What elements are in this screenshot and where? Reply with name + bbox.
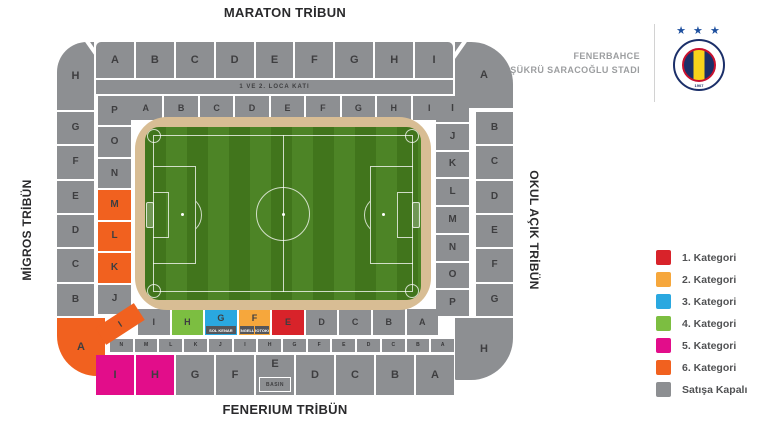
okul-acik-tribune-title: OKUL AÇIK TRİBÜN — [525, 165, 541, 295]
legend-label: Satışa Kapalı — [682, 384, 747, 396]
section-label: G — [217, 314, 224, 323]
section-label: O — [111, 137, 119, 147]
section-label: O — [449, 270, 457, 280]
section-label: G — [292, 343, 296, 348]
crest-stars-icon: ★ ★ ★ — [670, 26, 728, 37]
section-label: D — [72, 226, 79, 236]
goal-right — [412, 202, 420, 228]
section-label: D — [491, 192, 498, 202]
section-a: A — [96, 42, 134, 78]
section-label: P — [111, 106, 118, 116]
fenerium-middle-tier-row: NMLKJIHGFEDCBA — [110, 339, 454, 352]
section-label: N — [120, 343, 124, 348]
micro-label-row: SOL KENAR — [206, 326, 236, 334]
section-label: F — [491, 260, 497, 270]
section-label: G — [72, 123, 80, 133]
okul-inner-column: IJKLMNOP — [436, 96, 469, 316]
fenerium-tribune-title: FENERIUM TRİBÜN — [135, 402, 435, 417]
section-a: A — [416, 355, 454, 395]
section-label: D — [367, 343, 371, 348]
section-label: L — [111, 231, 117, 241]
header-divider — [654, 24, 655, 102]
section-k[interactable]: K — [98, 253, 131, 282]
section-label: C — [191, 55, 199, 66]
section-i: I — [436, 96, 469, 122]
press-box: BASIN — [259, 377, 291, 392]
section-i: I — [138, 309, 170, 335]
section-label: G — [355, 104, 362, 113]
section-label: J — [112, 294, 118, 304]
legend-swatch-cat6 — [656, 360, 671, 375]
legend-label: 4. Kategori — [682, 318, 736, 330]
corner-arc — [147, 129, 161, 143]
legend-label: 1. Kategori — [682, 252, 736, 264]
section-label: D — [311, 370, 319, 381]
okul-outer-column: BCDEFG — [476, 112, 513, 316]
center-spot — [282, 213, 285, 216]
section-label: B — [178, 104, 185, 113]
section-b: B — [57, 284, 94, 316]
legend-swatch-cat2 — [656, 272, 671, 287]
migros-outer-column: GFEDCB — [57, 112, 94, 316]
football-pitch — [145, 127, 421, 300]
section-label: B — [72, 295, 79, 305]
micro-label: SOL KENAR — [206, 326, 236, 334]
stadium-seat-map-page: MARATON TRİBUN FENERIUM TRİBÜN MİGROS TR… — [0, 0, 770, 439]
section-label: G — [491, 295, 499, 305]
section-label: A — [142, 104, 149, 113]
section-i: I — [415, 42, 453, 78]
section-p: P — [98, 96, 131, 125]
section-l[interactable]: L — [98, 222, 131, 251]
section-k: K — [184, 339, 207, 352]
section-n: N — [110, 339, 133, 352]
section-label: I — [113, 370, 116, 381]
stadium-header-text: FENERBAHCE ŞÜKRÜ SARACOĞLU STADI — [470, 50, 640, 77]
legend-item: 6. Kategori — [656, 360, 747, 375]
section-label: M — [448, 215, 456, 225]
section-h-corner-bottom-right: H — [455, 318, 513, 380]
legend-label: 5. Kategori — [682, 340, 736, 352]
section-g: G — [476, 284, 513, 316]
section-label: I — [433, 55, 436, 66]
section-h: H — [258, 339, 281, 352]
fenerbahce-crest: ★ ★ ★ 1907 — [670, 26, 728, 91]
micro-label: PROTOKOL — [255, 326, 269, 334]
section-label: A — [441, 343, 445, 348]
section-label: E — [72, 192, 79, 202]
section-j: J — [209, 339, 232, 352]
section-label: G — [191, 370, 200, 381]
section-label: J — [450, 132, 456, 142]
section-label: G — [350, 55, 359, 66]
legend-item: 4. Kategori — [656, 316, 747, 331]
legend-swatch-closed — [656, 382, 671, 397]
section-label: H — [391, 104, 398, 113]
fenerium-upper-tier-row: IHGFEBASINDCBA — [96, 355, 454, 395]
section-label: E — [342, 343, 345, 348]
section-label: J — [219, 343, 222, 348]
section-label: C — [491, 157, 498, 167]
section-label: B — [385, 318, 392, 327]
section-label: E — [491, 226, 498, 236]
penalty-spot-right — [382, 213, 385, 216]
section-b: B — [373, 309, 405, 335]
legend-swatch-cat3 — [656, 294, 671, 309]
section-label: E — [271, 55, 278, 66]
section-m: M — [135, 339, 158, 352]
section-label: F — [232, 370, 239, 381]
micro-label: ENGELLİ — [240, 326, 254, 334]
section-p: P — [436, 290, 469, 316]
crest-year: 1907 — [675, 83, 723, 88]
section-label: H — [151, 370, 159, 381]
section-label: H — [480, 344, 488, 355]
section-label: H — [72, 71, 80, 82]
pitch-track — [135, 117, 431, 310]
section-label: K — [449, 159, 456, 169]
section-label: E — [284, 104, 290, 113]
legend-item: 1. Kategori — [656, 250, 747, 265]
section-f: F — [308, 339, 331, 352]
section-label: N — [449, 243, 456, 253]
maraton-tribune-title: MARATON TRİBUN — [135, 5, 435, 20]
section-b: B — [407, 339, 430, 352]
section-g[interactable]: GSOL KENAR — [205, 309, 237, 335]
goal-area-left — [153, 192, 169, 238]
section-g: G — [176, 355, 214, 395]
section-m: M — [436, 207, 469, 233]
legend-item: Satışa Kapalı — [656, 382, 747, 397]
section-h: H — [375, 42, 413, 78]
section-label: H — [268, 343, 272, 348]
migros-tribune-title: MİGROS TRİBÜN — [20, 170, 36, 290]
section-label: M — [144, 343, 148, 348]
section-g: G — [57, 112, 94, 144]
legend-swatch-cat4 — [656, 316, 671, 331]
section-label: D — [231, 55, 239, 66]
section-b: B — [376, 355, 414, 395]
section-f: F — [476, 249, 513, 281]
section-d: D — [57, 215, 94, 247]
legend-label: 2. Kategori — [682, 274, 736, 286]
section-e[interactable]: E — [272, 309, 304, 335]
section-c: C — [57, 249, 94, 281]
corner-arc — [405, 129, 419, 143]
legend-item: 3. Kategori — [656, 294, 747, 309]
section-f: F — [295, 42, 333, 78]
section-label: E — [271, 359, 278, 370]
section-o: O — [98, 127, 131, 156]
section-label: A — [419, 318, 426, 327]
stadium-name: ŞÜKRÜ SARACOĞLU STADI — [470, 64, 640, 78]
section-d: D — [476, 181, 513, 213]
crest-shield — [682, 48, 716, 82]
section-label: N — [111, 169, 118, 179]
section-n: N — [98, 159, 131, 188]
corner-arc — [405, 284, 419, 298]
section-a: A — [129, 96, 162, 120]
section-label: M — [110, 200, 118, 210]
section-c: C — [382, 339, 405, 352]
legend-swatch-cat5 — [656, 338, 671, 353]
section-b: B — [476, 112, 513, 144]
category-legend: 1. Kategori2. Kategori3. Kategori4. Kate… — [656, 250, 747, 404]
section-label: K — [194, 343, 198, 348]
section-c: C — [339, 309, 371, 335]
section-e: E — [332, 339, 355, 352]
section-label: I — [244, 343, 245, 348]
section-e: E — [57, 181, 94, 213]
section-label: L — [169, 343, 172, 348]
legend-swatch-cat1 — [656, 250, 671, 265]
section-h-corner-top-left: H — [57, 42, 94, 110]
section-label: P — [449, 298, 456, 308]
section-j: J — [436, 124, 469, 150]
section-d: D — [216, 42, 254, 78]
section-label: I — [451, 104, 454, 114]
section-label: F — [318, 343, 321, 348]
club-crest-icon: 1907 — [673, 39, 725, 91]
section-a: A — [431, 339, 454, 352]
section-label: B — [491, 123, 498, 133]
goal-left — [146, 202, 154, 228]
section-n: N — [436, 235, 469, 261]
section-label: D — [249, 104, 256, 113]
section-label: H — [184, 318, 191, 327]
section-h[interactable]: H — [136, 355, 174, 395]
section-label: B — [416, 343, 420, 348]
section-c: C — [476, 146, 513, 178]
section-l: L — [159, 339, 182, 352]
section-label: H — [390, 55, 398, 66]
section-k: K — [436, 152, 469, 178]
section-label: A — [77, 342, 85, 353]
section-label: C — [352, 318, 359, 327]
corner-arc — [147, 284, 161, 298]
section-a: A — [407, 309, 439, 335]
section-label: C — [72, 260, 79, 270]
section-label: A — [431, 370, 439, 381]
section-label: L — [449, 187, 455, 197]
migros-inner-column: PONMLKJ — [98, 96, 131, 314]
section-m[interactable]: M — [98, 190, 131, 219]
section-o: O — [436, 263, 469, 289]
section-label: F — [311, 55, 318, 66]
section-label: A — [111, 55, 119, 66]
section-label: E — [285, 318, 291, 327]
section-d: D — [296, 355, 334, 395]
section-label: I — [428, 104, 431, 113]
section-e: E — [256, 42, 294, 78]
section-g: G — [283, 339, 306, 352]
section-c: C — [176, 42, 214, 78]
micro-label-row: ENGELLİPROTOKOL — [240, 326, 270, 334]
section-label: B — [391, 370, 399, 381]
legend-label: 3. Kategori — [682, 296, 736, 308]
penalty-spot-left — [181, 213, 184, 216]
section-label: I — [153, 318, 156, 327]
section-f: F — [216, 355, 254, 395]
section-g: G — [335, 42, 373, 78]
section-i: I — [234, 339, 257, 352]
section-label: B — [151, 55, 159, 66]
maraton-upper-tier-row: ABCDEFGHI — [96, 42, 453, 78]
club-name: FENERBAHCE — [470, 50, 640, 64]
loca-strip: 1 VE 2. LOCA KATI — [96, 80, 453, 94]
section-label: C — [351, 370, 359, 381]
section-i[interactable]: I — [96, 355, 134, 395]
section-label: F — [72, 157, 78, 167]
legend-label: 6. Kategori — [682, 362, 736, 374]
legend-item: 2. Kategori — [656, 272, 747, 287]
section-label: K — [111, 263, 118, 273]
section-d: D — [357, 339, 380, 352]
section-h[interactable]: H — [172, 309, 204, 335]
section-label: C — [213, 104, 220, 113]
section-e: EBASIN — [256, 355, 294, 395]
section-e: E — [476, 215, 513, 247]
fenerium-lower-tier-row: IHGSOL KENARFENGELLİPROTOKOLEDCBA — [138, 309, 438, 335]
section-label: F — [252, 314, 258, 323]
legend-item: 5. Kategori — [656, 338, 747, 353]
section-f: F — [57, 146, 94, 178]
section-f[interactable]: FENGELLİPROTOKOL — [239, 309, 271, 335]
section-b: B — [136, 42, 174, 78]
section-label: C — [391, 343, 395, 348]
section-label: I — [116, 320, 123, 329]
section-label: F — [320, 104, 326, 113]
section-c: C — [336, 355, 374, 395]
goal-area-right — [397, 192, 413, 238]
section-d: D — [306, 309, 338, 335]
section-l: L — [436, 179, 469, 205]
section-label: D — [318, 318, 325, 327]
